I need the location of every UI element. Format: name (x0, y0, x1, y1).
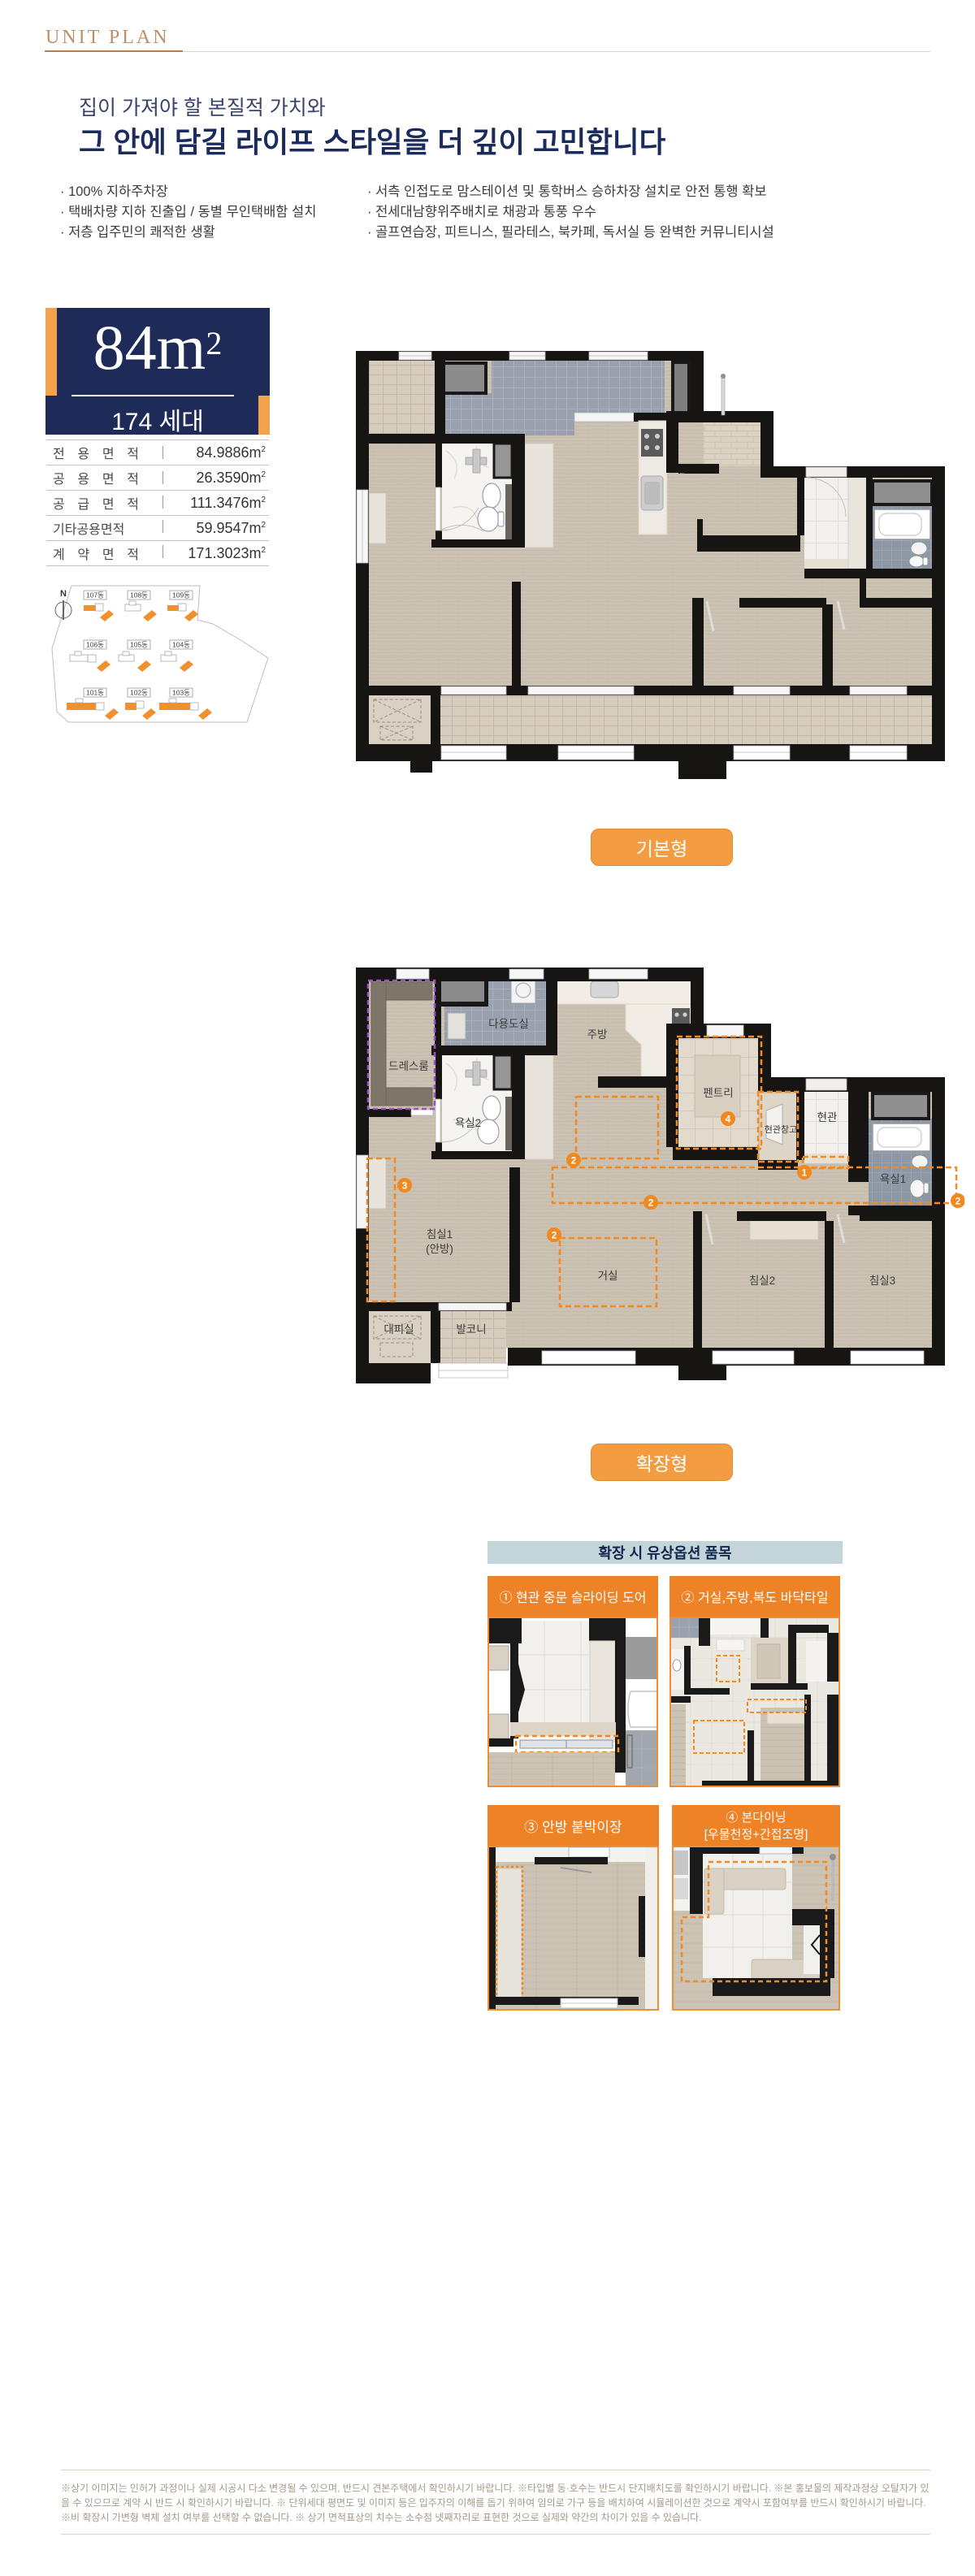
svg-text:102동: 102동 (130, 689, 148, 697)
svg-text:107동: 107동 (86, 591, 104, 600)
svg-text:4: 4 (726, 1114, 731, 1125)
svg-text:2: 2 (552, 1230, 557, 1241)
svg-text:침실3: 침실3 (869, 1275, 895, 1287)
svg-text:2: 2 (571, 1155, 577, 1167)
svg-text:2: 2 (955, 1196, 961, 1207)
svg-text:발코니: 발코니 (456, 1323, 486, 1336)
svg-text:109동: 109동 (172, 591, 190, 600)
svg-text:침실2: 침실2 (749, 1275, 775, 1287)
svg-text:N: N (60, 589, 67, 599)
svg-text:욕실2: 욕실2 (455, 1117, 481, 1129)
svg-text:1: 1 (802, 1167, 808, 1179)
svg-text:106동: 106동 (86, 641, 104, 649)
svg-text:드레스룸: 드레스룸 (388, 1060, 429, 1072)
svg-text:현관창고: 현관창고 (765, 1124, 797, 1135)
svg-text:주방: 주방 (587, 1028, 608, 1041)
svg-text:3: 3 (402, 1180, 408, 1192)
svg-text:108동: 108동 (130, 591, 148, 600)
svg-text:103동: 103동 (172, 689, 190, 697)
svg-text:펜트리: 펜트리 (703, 1087, 733, 1099)
svg-text:101동: 101동 (86, 689, 104, 697)
svg-text:욕실1: 욕실1 (880, 1173, 906, 1185)
svg-text:105동: 105동 (130, 641, 148, 649)
svg-text:침실1: 침실1 (427, 1228, 453, 1240)
svg-text:현관: 현관 (817, 1111, 838, 1123)
svg-text:대피실: 대피실 (383, 1323, 414, 1336)
svg-text:104동: 104동 (172, 641, 190, 649)
svg-text:다용도실: 다용도실 (488, 1018, 529, 1030)
svg-text:거실: 거실 (598, 1270, 618, 1282)
svg-text:(안방): (안방) (426, 1243, 453, 1255)
svg-text:2: 2 (648, 1197, 654, 1209)
